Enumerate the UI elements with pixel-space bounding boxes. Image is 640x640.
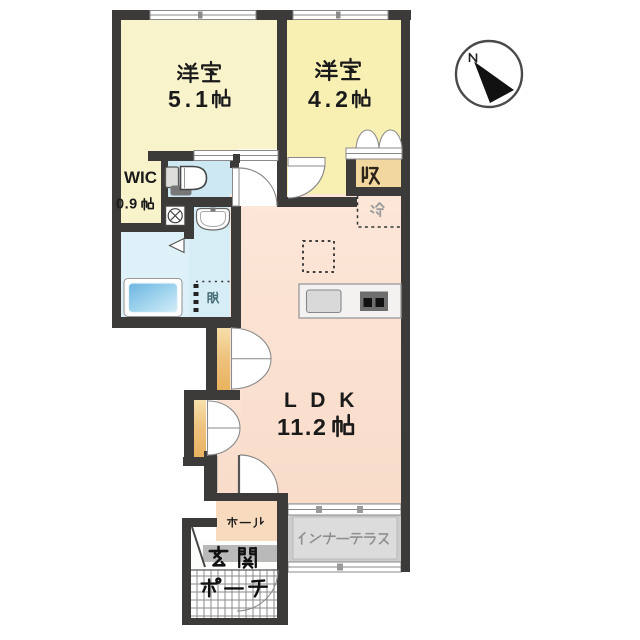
svg-text:0.9: 0.9 xyxy=(116,197,138,213)
svg-text:L D K: L D K xyxy=(284,389,358,412)
svg-text:11.2: 11.2 xyxy=(277,414,327,440)
svg-text:WIC: WIC xyxy=(124,168,157,187)
svg-text:5.1: 5.1 xyxy=(168,86,212,112)
svg-text:4.2: 4.2 xyxy=(308,86,352,112)
